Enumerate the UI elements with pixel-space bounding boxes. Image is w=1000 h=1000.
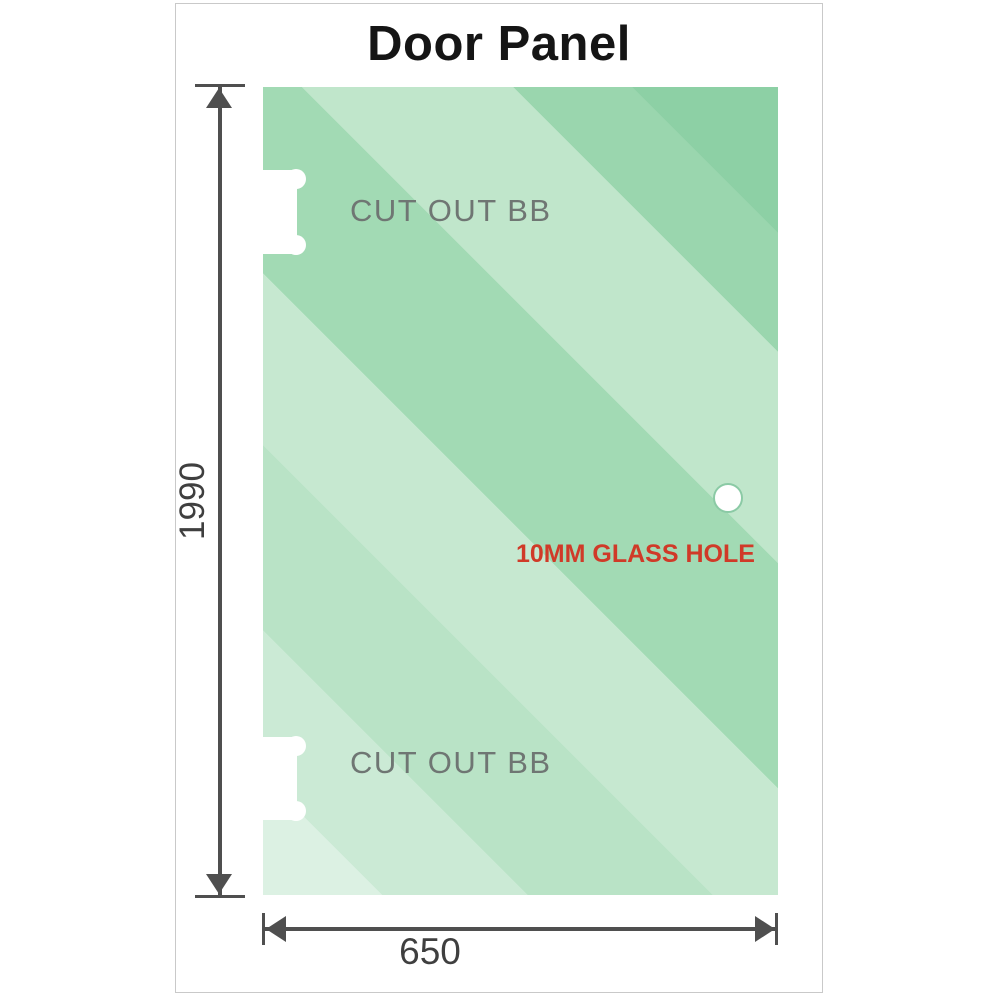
spec-sheet: Door Panel CUT OUT BB CUT OUT BB 10MM GL… bbox=[0, 0, 1000, 1000]
arrow-down-icon bbox=[206, 874, 232, 894]
glass-hole-label: 10MM GLASS HOLE bbox=[516, 540, 755, 569]
height-dimension-value: 1990 bbox=[173, 449, 211, 553]
height-dimension-bottom-cap bbox=[195, 895, 245, 898]
arrow-left-icon bbox=[266, 916, 286, 942]
width-dimension-value: 650 bbox=[378, 931, 482, 973]
arrow-up-icon bbox=[206, 88, 232, 108]
cutout-bottom-bump-lower bbox=[286, 801, 306, 821]
height-dimension-line bbox=[218, 86, 222, 897]
cutout-bottom-label: CUT OUT BB bbox=[350, 745, 552, 781]
arrow-right-icon bbox=[755, 916, 775, 942]
glass-hole bbox=[713, 483, 743, 513]
width-dimension-line bbox=[264, 927, 776, 931]
width-dimension-right-cap bbox=[775, 913, 778, 945]
cutout-top-label: CUT OUT BB bbox=[350, 193, 552, 229]
page-title: Door Panel bbox=[175, 16, 823, 72]
cutout-top-bump-upper bbox=[286, 169, 306, 189]
cutout-top-bump-lower bbox=[286, 235, 306, 255]
cutout-bottom-bump-upper bbox=[286, 736, 306, 756]
